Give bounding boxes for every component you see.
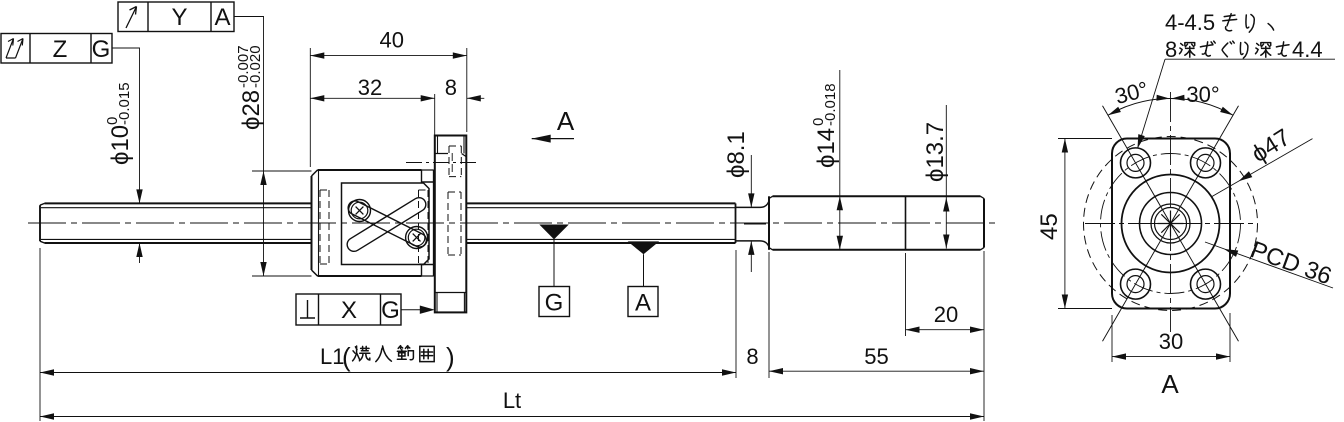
svg-text:G: G xyxy=(92,36,111,63)
svg-text:20: 20 xyxy=(934,302,958,327)
svg-text:A: A xyxy=(635,290,651,317)
svg-text:8: 8 xyxy=(1165,37,1177,62)
svg-text:55: 55 xyxy=(864,344,888,369)
svg-text:32: 32 xyxy=(358,75,382,100)
svg-text:Y: Y xyxy=(171,4,187,31)
svg-text:4.4: 4.4 xyxy=(1292,37,1323,62)
svg-text:ϕ8.1: ϕ8.1 xyxy=(723,131,750,178)
svg-text:A: A xyxy=(1161,369,1179,399)
svg-text:Z: Z xyxy=(53,36,68,63)
svg-text:): ) xyxy=(446,342,455,372)
svg-text:A: A xyxy=(557,106,575,136)
svg-text:-0.015: -0.015 xyxy=(116,82,133,125)
svg-text:-0.018: -0.018 xyxy=(822,83,839,126)
svg-text:8: 8 xyxy=(445,75,457,100)
svg-text:X: X xyxy=(341,297,357,324)
svg-text:ϕ13.7: ϕ13.7 xyxy=(922,122,949,182)
svg-text:45: 45 xyxy=(1036,213,1063,240)
svg-text:30°: 30° xyxy=(1186,82,1219,107)
svg-text:30: 30 xyxy=(1159,329,1183,354)
svg-text:L1: L1 xyxy=(320,344,344,369)
svg-text:ϕ28: ϕ28 xyxy=(238,90,265,130)
svg-text:ϕ10: ϕ10 xyxy=(107,125,134,165)
svg-text:4-4.5: 4-4.5 xyxy=(1165,10,1215,35)
svg-text:8: 8 xyxy=(746,344,758,369)
svg-text:G: G xyxy=(381,297,400,324)
svg-text:(: ( xyxy=(342,342,351,372)
svg-text:A: A xyxy=(214,4,230,31)
svg-text:G: G xyxy=(545,290,564,317)
svg-text:ϕ14: ϕ14 xyxy=(813,128,840,168)
svg-text:40: 40 xyxy=(379,28,403,53)
svg-text:Lt: Lt xyxy=(503,388,521,413)
svg-text:-0.020: -0.020 xyxy=(247,45,264,88)
